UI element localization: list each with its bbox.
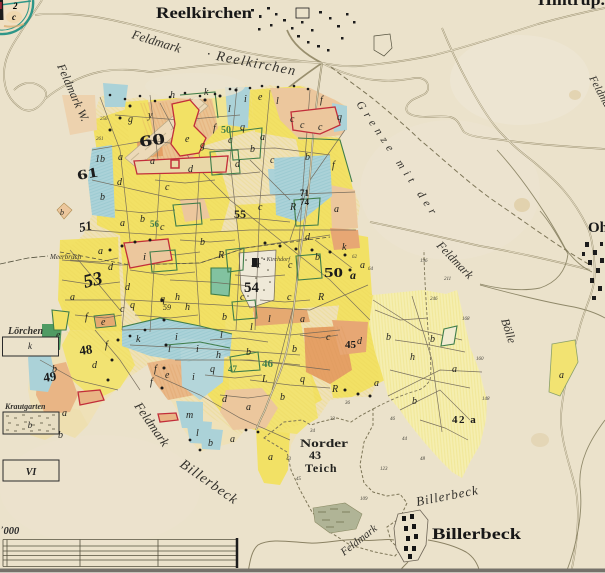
svg-text:a: a xyxy=(70,292,75,303)
svg-text:256: 256 xyxy=(100,117,108,122)
svg-text:a: a xyxy=(230,434,235,445)
svg-text:l: l xyxy=(268,314,271,325)
svg-text:q: q xyxy=(337,112,342,123)
svg-text:b: b xyxy=(208,438,213,449)
svg-text:36: 36 xyxy=(345,401,351,406)
svg-text:c: c xyxy=(258,202,263,213)
svg-text:i: i xyxy=(175,332,178,343)
svg-text:50: 50 xyxy=(324,266,343,281)
svg-text:a: a xyxy=(260,132,265,143)
svg-text:47: 47 xyxy=(228,364,238,374)
svg-text:1b: 1b xyxy=(95,154,105,165)
svg-text:261: 261 xyxy=(96,137,104,142)
svg-text:l: l xyxy=(276,96,279,107)
svg-text:Teich: Teich xyxy=(305,461,338,475)
svg-text:160: 160 xyxy=(476,357,484,362)
svg-text:b: b xyxy=(246,347,251,358)
svg-text:g: g xyxy=(128,114,133,125)
svg-text:109: 109 xyxy=(360,497,368,502)
svg-text:l: l xyxy=(196,428,199,439)
svg-text:e: e xyxy=(185,134,190,145)
svg-text:34: 34 xyxy=(310,429,316,434)
svg-text:a: a xyxy=(118,152,123,163)
svg-text:246: 246 xyxy=(430,297,438,302)
svg-text:e: e xyxy=(258,92,263,103)
svg-text:b: b xyxy=(412,396,417,407)
svg-text:Krautgarten: Krautgarten xyxy=(4,402,46,411)
svg-text:q: q xyxy=(240,122,245,133)
svg-text:45: 45 xyxy=(345,339,357,351)
svg-text:a: a xyxy=(98,246,103,257)
svg-text:l: l xyxy=(168,344,171,355)
svg-text:62: 62 xyxy=(352,255,358,260)
svg-text:55: 55 xyxy=(234,207,246,221)
svg-text:c: c xyxy=(256,260,261,271)
svg-text:a: a xyxy=(268,452,273,463)
svg-text:a: a xyxy=(334,204,339,215)
svg-text:b: b xyxy=(52,364,57,375)
svg-text:c: c xyxy=(228,135,233,146)
svg-text:e: e xyxy=(165,370,170,381)
svg-text:Hintrup.: Hintrup. xyxy=(538,0,605,9)
svg-text:a: a xyxy=(62,408,67,419)
svg-text:c: c xyxy=(300,120,305,131)
svg-text:b: b xyxy=(140,214,145,225)
svg-text:168: 168 xyxy=(462,317,470,322)
svg-text:y: y xyxy=(147,110,153,121)
svg-text:54: 54 xyxy=(244,280,260,296)
svg-text:c: c xyxy=(165,182,170,193)
svg-text:c: c xyxy=(290,114,295,125)
svg-text:q: q xyxy=(130,300,135,311)
svg-text:64: 64 xyxy=(368,267,374,272)
svg-text:196: 196 xyxy=(420,259,428,264)
svg-text:i: i xyxy=(143,251,146,263)
svg-text:e: e xyxy=(101,317,106,328)
svg-text:b: b xyxy=(430,334,435,345)
svg-text:a: a xyxy=(300,314,305,325)
svg-text:Billerbeck: Billerbeck xyxy=(432,526,521,543)
svg-text:m: m xyxy=(186,410,193,421)
svg-text:c: c xyxy=(120,304,125,315)
svg-text:l: l xyxy=(220,330,223,341)
svg-text:a: a xyxy=(150,156,155,167)
svg-text:c: c xyxy=(287,292,292,303)
svg-text:33: 33 xyxy=(330,417,336,422)
svg-text:b: b xyxy=(305,152,310,163)
svg-text:b: b xyxy=(292,344,297,355)
svg-text:b: b xyxy=(386,332,391,343)
svg-text:b: b xyxy=(250,144,255,155)
svg-text:R: R xyxy=(331,384,338,395)
svg-text:Oh: Oh xyxy=(588,220,605,236)
svg-text:VI: VI xyxy=(26,467,38,478)
svg-text:b: b xyxy=(280,392,285,403)
svg-text:59: 59 xyxy=(163,303,171,312)
svg-text:Norder: Norder xyxy=(300,436,349,450)
svg-text:i: i xyxy=(244,94,247,105)
svg-text:g: g xyxy=(200,140,205,151)
svg-text:h: h xyxy=(185,302,190,313)
svg-text:c: c xyxy=(12,12,16,22)
svg-text:Lörchen: Lörchen xyxy=(7,326,43,337)
svg-text:k: k xyxy=(204,87,209,98)
svg-text:b: b xyxy=(28,420,33,430)
svg-text:᾽000: ᾽000 xyxy=(0,526,20,537)
svg-text:56: 56 xyxy=(150,219,160,229)
svg-text:c: c xyxy=(160,222,165,233)
svg-text:148: 148 xyxy=(482,397,490,402)
svg-text:k: k xyxy=(342,242,347,253)
svg-text:a: a xyxy=(559,370,564,381)
svg-text:c: c xyxy=(318,122,323,133)
svg-text:c: c xyxy=(240,292,245,303)
svg-text:l: l xyxy=(228,104,231,115)
svg-text:b: b xyxy=(100,192,105,203)
svg-text:46: 46 xyxy=(390,417,396,422)
svg-text:45: 45 xyxy=(296,477,302,482)
svg-text:b: b xyxy=(315,252,320,263)
svg-text:2: 2 xyxy=(12,1,18,11)
svg-text:b: b xyxy=(200,237,205,248)
svg-text:c: c xyxy=(326,332,331,343)
svg-text:74: 74 xyxy=(300,197,310,207)
svg-text:123: 123 xyxy=(380,467,388,472)
svg-text:a: a xyxy=(120,218,125,229)
svg-text:a: a xyxy=(246,402,251,413)
svg-text:R: R xyxy=(317,292,324,303)
svg-text:Meerbruch: Meerbruch xyxy=(49,253,82,261)
svg-text:i: i xyxy=(192,372,195,383)
svg-text:q: q xyxy=(210,364,215,375)
svg-text:b: b xyxy=(222,312,227,323)
svg-text:211: 211 xyxy=(444,277,451,282)
svg-text:c: c xyxy=(270,155,275,166)
svg-text:h: h xyxy=(170,90,175,101)
svg-text:k: k xyxy=(136,334,141,345)
svg-text:h: h xyxy=(410,352,415,363)
svg-text:a: a xyxy=(360,260,365,271)
svg-text:42 a: 42 a xyxy=(452,414,477,426)
svg-text:a: a xyxy=(452,364,457,375)
svg-text:R: R xyxy=(217,250,224,261)
svg-text:60: 60 xyxy=(138,131,166,151)
svg-text:c: c xyxy=(288,260,293,271)
svg-text:q: q xyxy=(300,374,305,385)
svg-text:l: l xyxy=(250,322,253,333)
svg-text:L: L xyxy=(261,374,268,385)
svg-text:46: 46 xyxy=(262,358,274,370)
svg-text:43: 43 xyxy=(286,457,292,462)
svg-text:i: i xyxy=(196,344,199,355)
svg-text:43: 43 xyxy=(309,448,321,462)
svg-text:Reelkirchen: Reelkirchen xyxy=(156,5,252,22)
svg-text:h: h xyxy=(216,350,221,361)
svg-text:R: R xyxy=(289,202,296,213)
svg-text:44: 44 xyxy=(402,437,408,442)
svg-text:h: h xyxy=(175,292,180,303)
svg-text:b: b xyxy=(60,208,64,217)
svg-text:48: 48 xyxy=(78,341,93,358)
svg-text:48: 48 xyxy=(420,457,426,462)
svg-text:a: a xyxy=(374,378,379,389)
